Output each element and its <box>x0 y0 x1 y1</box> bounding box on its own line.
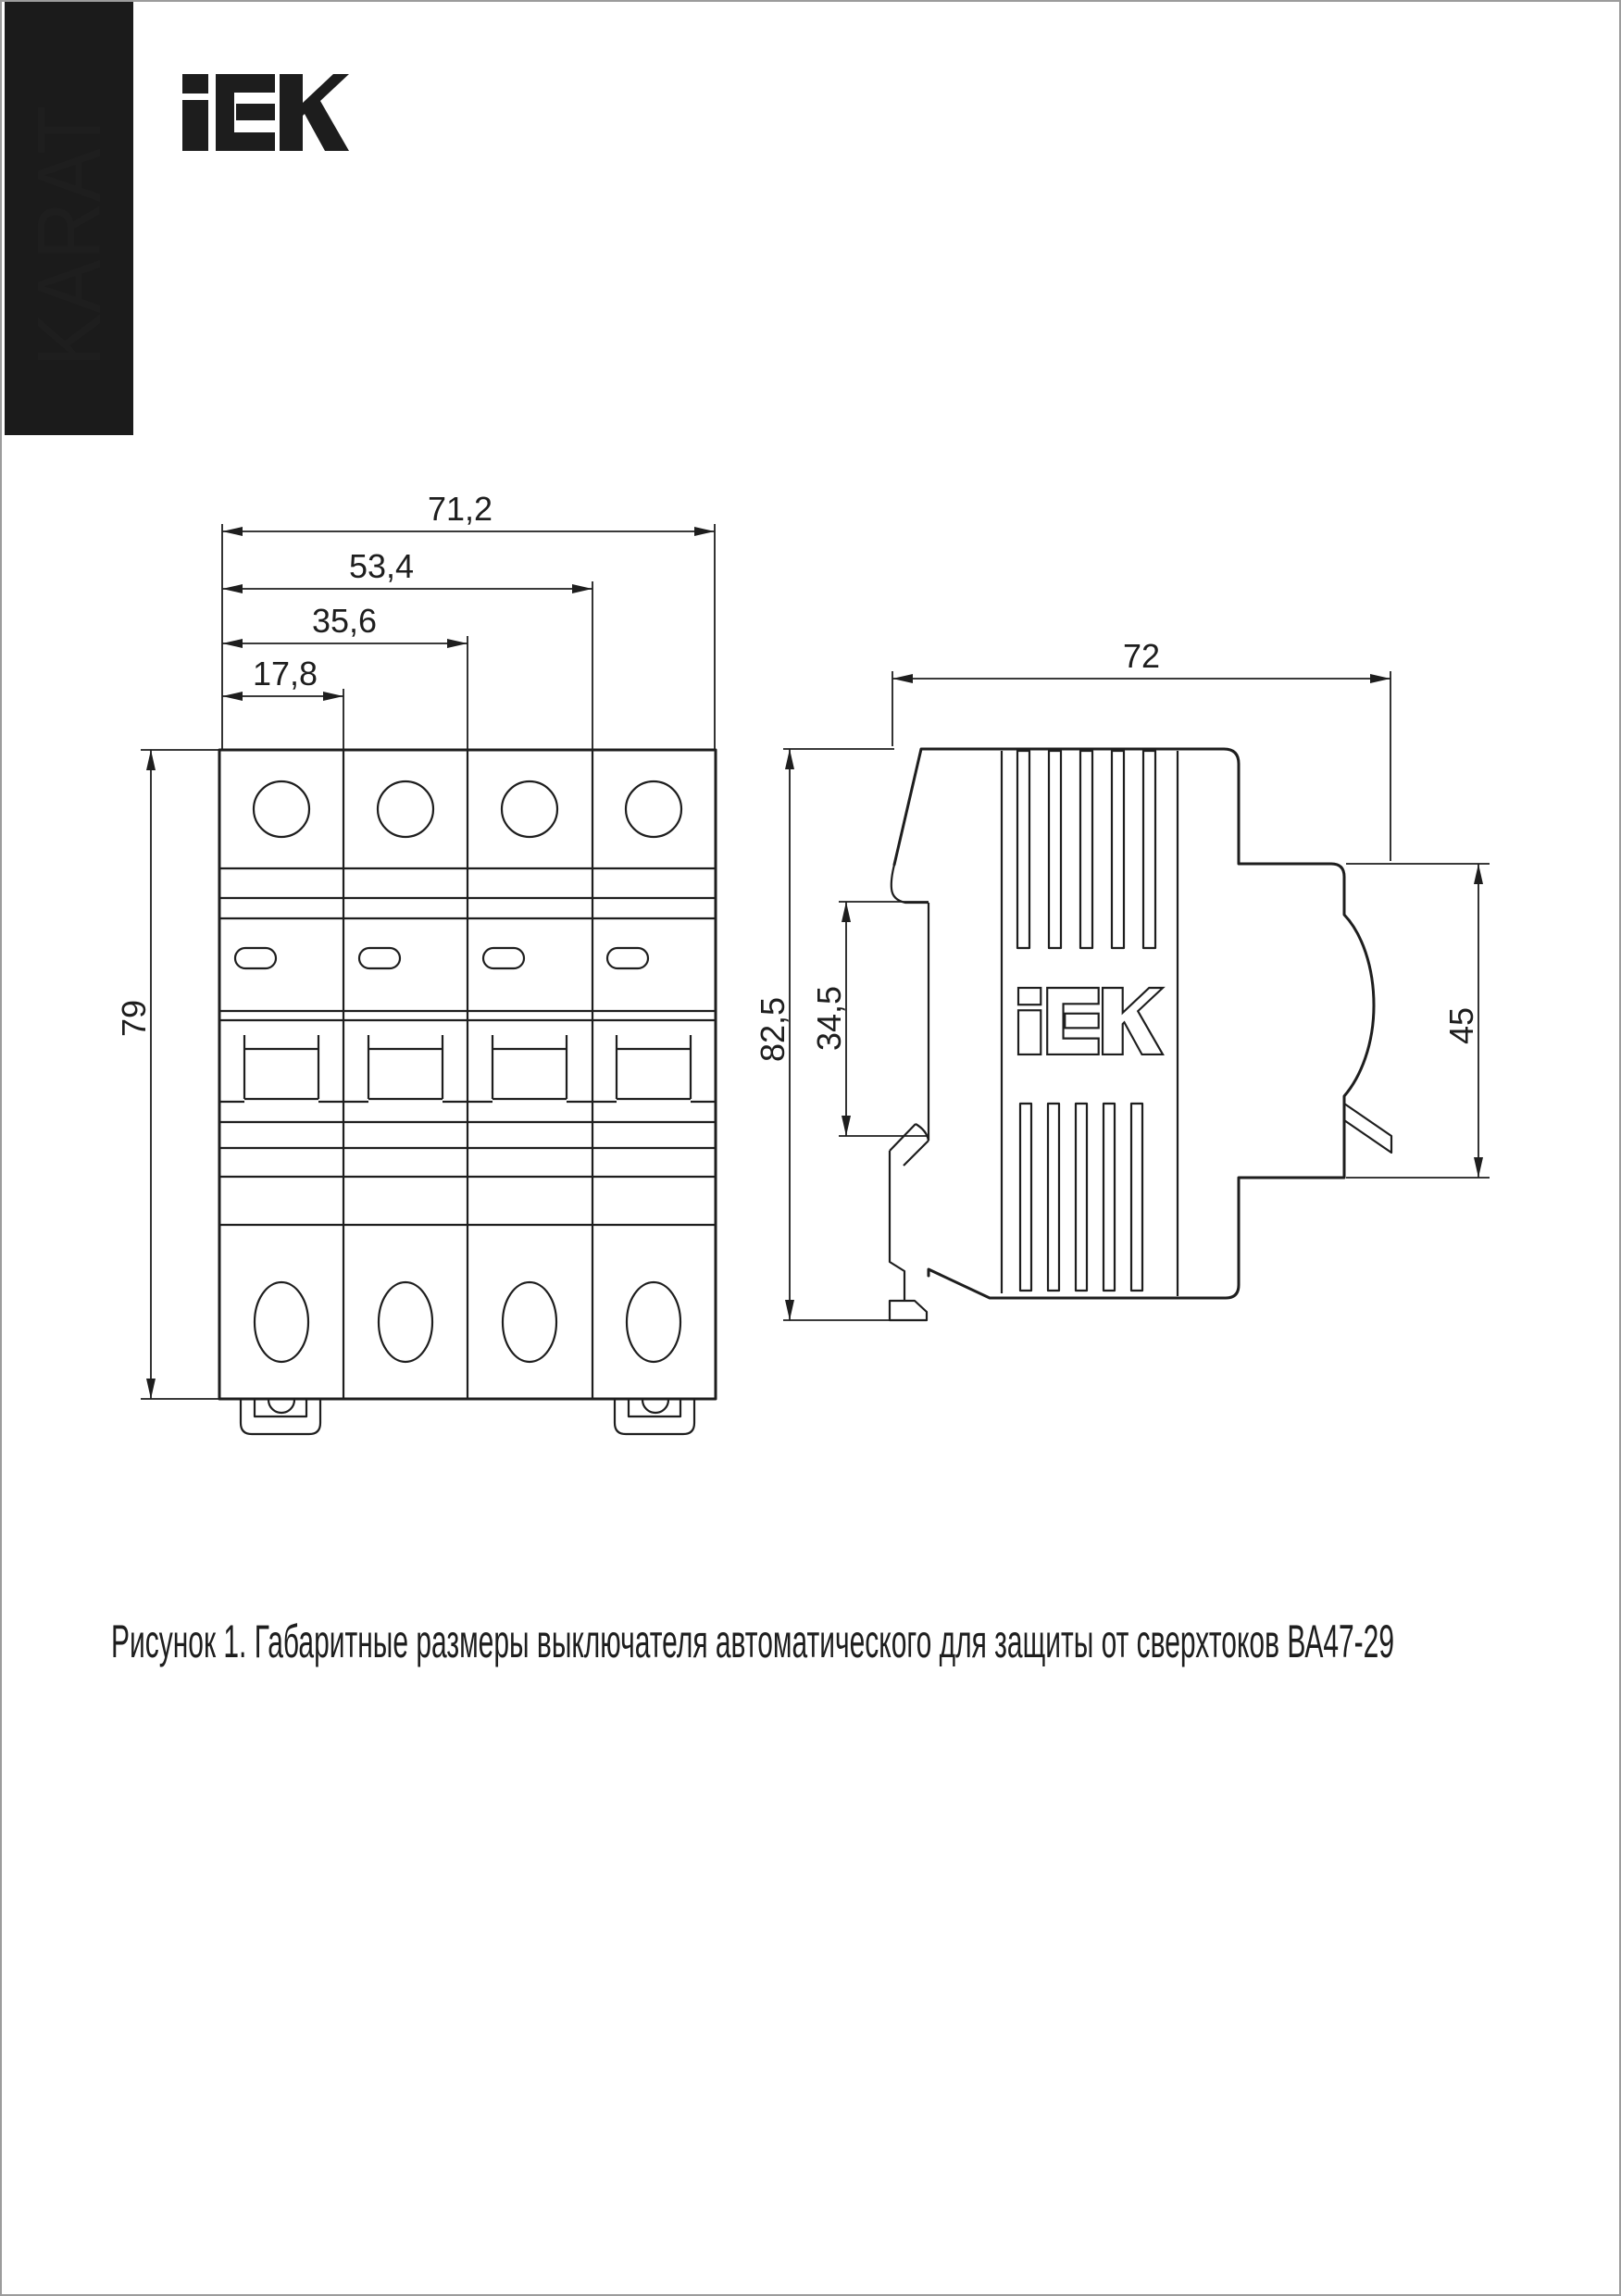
dim-label-17-8: 17,8 <box>253 655 318 693</box>
dim-side-front-width: 45 <box>1346 864 1490 1178</box>
vent-slots-bottom <box>1020 1104 1142 1291</box>
dim-side-rail-window: 34,5 <box>810 902 929 1136</box>
dim-label-45: 45 <box>1442 1007 1480 1044</box>
vent-slots-top <box>1017 751 1155 948</box>
dim-front-width-total: 71,2 <box>222 490 715 750</box>
karat-banner-text: KARAT <box>19 106 119 367</box>
dim-label-71-2: 71,2 <box>428 490 493 528</box>
iek-logo-embossed <box>1018 988 1163 1054</box>
dim-front-height: 79 <box>115 750 219 1399</box>
document-page: KARAT <box>0 0 1621 2296</box>
front-view: 71,2 53,4 35,6 17,8 <box>115 490 716 1434</box>
side-view: 72 82,5 34,5 45 <box>754 637 1490 1320</box>
figure-caption: Рисунок 1. Габаритные размеры выключател… <box>111 1616 1394 1667</box>
figure-canvas: KARAT <box>0 0 1621 2296</box>
dim-label-72: 72 <box>1123 637 1160 675</box>
dim-label-79: 79 <box>115 1000 153 1037</box>
dim-label-53-4: 53,4 <box>349 547 414 585</box>
din-clips <box>241 1399 694 1434</box>
karat-banner: KARAT <box>5 2 133 435</box>
din-channel-profile <box>890 865 929 1320</box>
dim-front-width-three-poles: 53,4 <box>222 547 592 750</box>
dim-label-82-5: 82,5 <box>754 997 792 1062</box>
label-window-slots <box>235 948 648 968</box>
dim-label-34-5: 34,5 <box>810 986 848 1051</box>
dim-label-35-6: 35,6 <box>312 602 377 640</box>
dim-front-width-one-pole: 17,8 <box>222 655 343 750</box>
rail-release-latch <box>1344 1104 1391 1153</box>
iek-logo <box>182 74 349 151</box>
module-dividers <box>343 750 592 1399</box>
